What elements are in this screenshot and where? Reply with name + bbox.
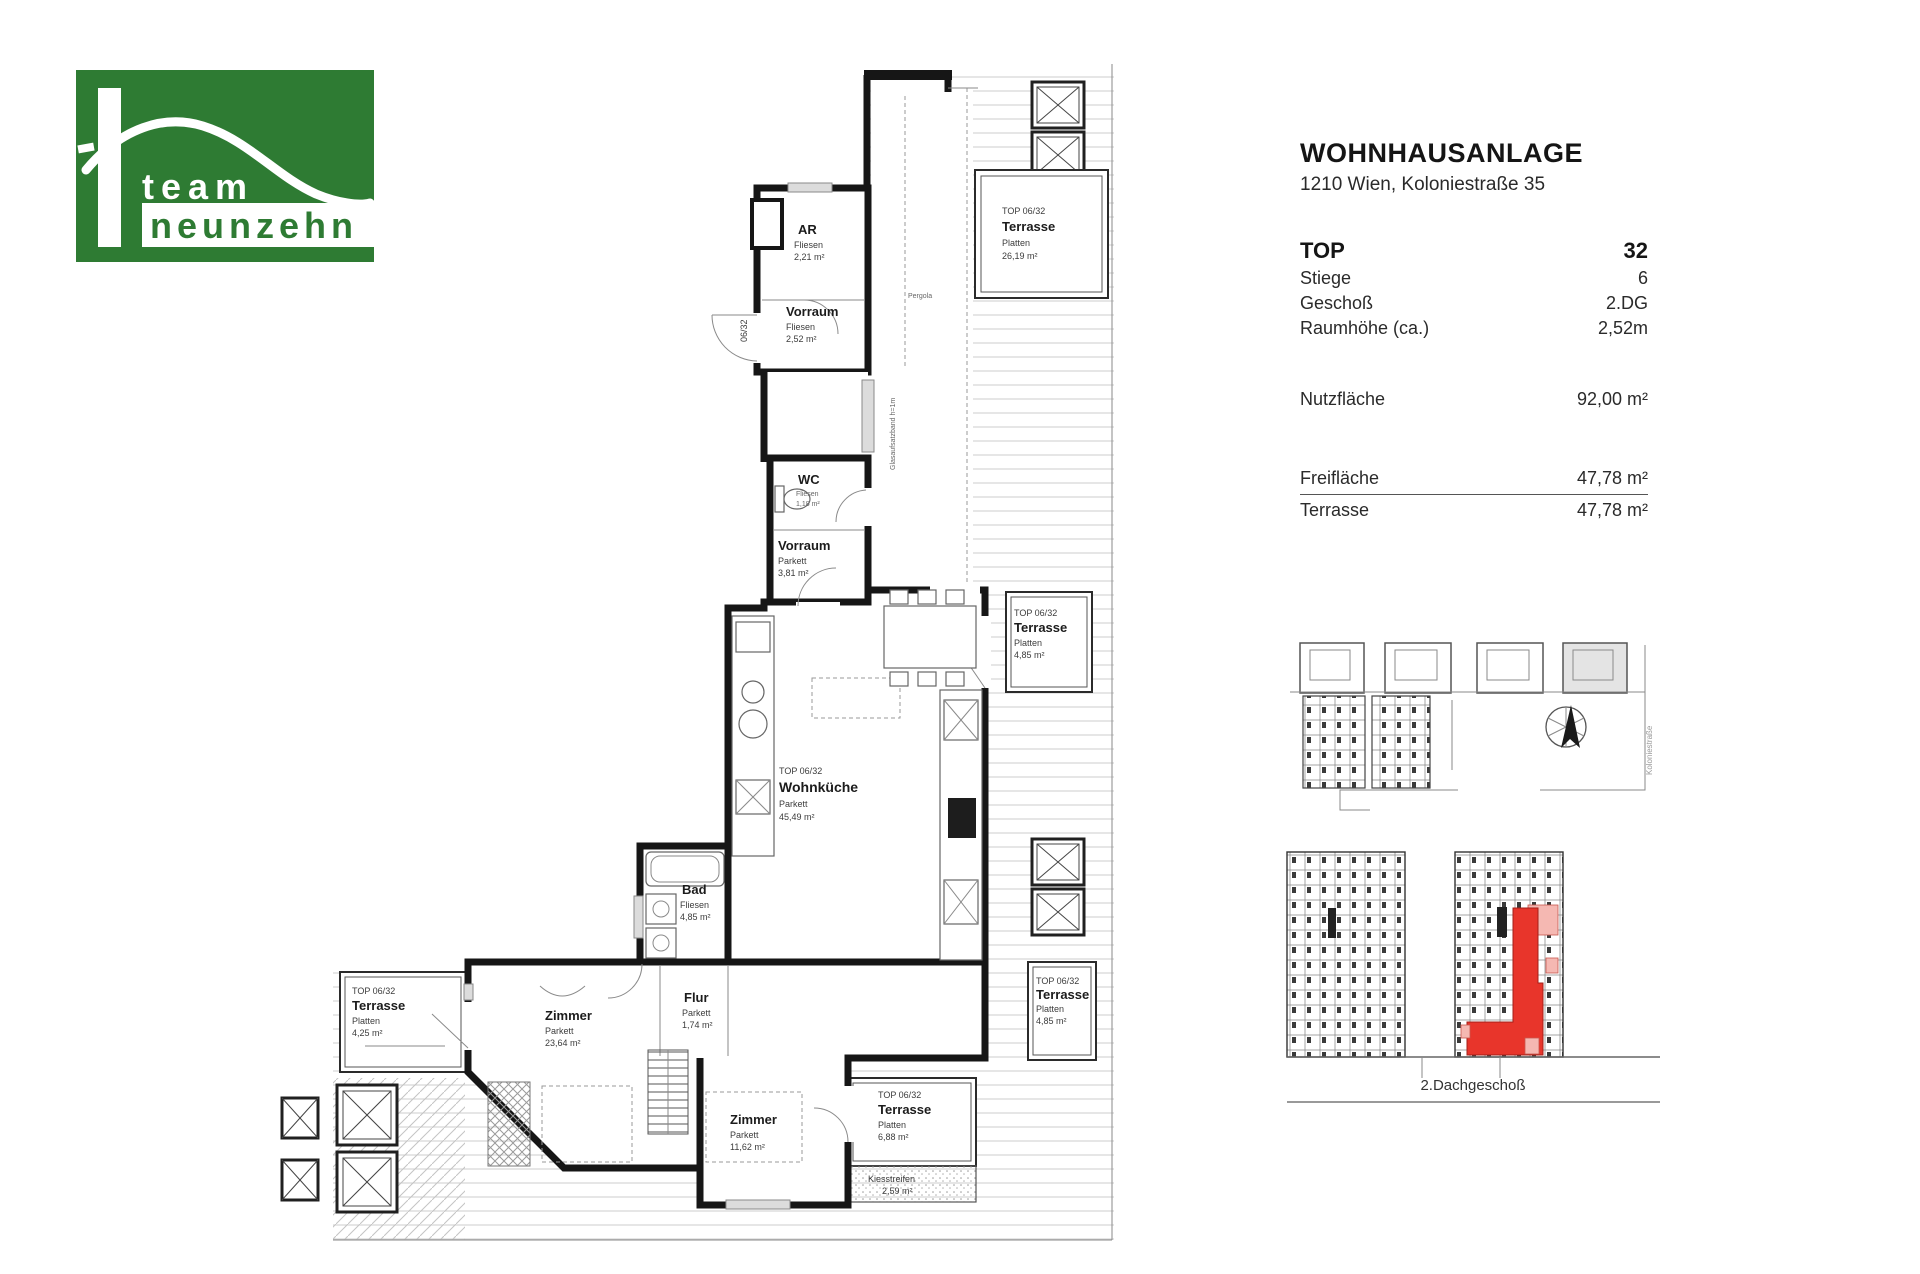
svg-text:Fliesen: Fliesen [794,240,823,250]
zimmer1-terrace-door-gap [462,1002,474,1050]
terrace-left: TOP 06/32 Terrasse Platten 4,25 m² [340,972,466,1072]
keyplan-building-left [1287,852,1405,1057]
skylight-right-2 [1032,889,1084,935]
wardrobe [488,1082,530,1166]
terrace-low-right: TOP 06/32 Terrasse Platten 4,85 m² [1028,962,1096,1060]
terrace-left-material: Platten [352,1016,380,1026]
chair [946,672,964,686]
skylight-small-2 [282,1160,318,1200]
north-needle [1561,705,1580,748]
bath-sink-2 [646,928,676,958]
svg-text:Fliesen: Fliesen [680,900,709,910]
terrace-left-area: 4,25 m² [352,1028,383,1038]
chair [946,590,964,604]
terrace-mid-area: 4,85 m² [1014,650,1045,660]
terrace-left-tag: TOP 06/32 [352,986,395,996]
label-ar: AR [798,222,817,237]
kitchen-sink-small [742,681,764,703]
keyplan-floor-label: 2.Dachgeschoß [1420,1077,1525,1094]
floorplan-page: team neunzehn WOHNHAUSANLAGE 1210 Wien, … [0,0,1920,1274]
highlight-terrace-3 [1525,1038,1539,1054]
svg-text:11,62 m²: 11,62 m² [730,1142,765,1152]
entrance-door-gap [751,313,763,363]
svg-text:Parkett: Parkett [682,1008,711,1018]
terrace-low-name: Terrasse [1036,987,1089,1002]
kiesstreifen-label: Kiesstreifen [868,1174,915,1184]
entrance-door-label: 06/32 [739,319,749,342]
terrace-mid-material: Platten [1014,638,1042,648]
bathtub [646,852,724,886]
svg-text:Parkett: Parkett [779,799,808,809]
label-vorraum2: Vorraum [778,538,831,553]
terrace-low-material: Platten [1036,1004,1064,1014]
terrace-bottom-area: 6,88 m² [878,1132,909,1142]
wc-tank [775,486,784,512]
terrace-door-gap [979,616,991,688]
entrance-niche [752,200,782,248]
svg-text:Fliesen: Fliesen [786,322,815,332]
label-wohnkueche: Wohnküche [779,779,858,795]
kiesstreifen-strip [848,1166,976,1202]
dining-table [884,606,976,668]
entrance-window [788,183,832,192]
svg-text:45,49 m²: 45,49 m² [779,812,815,822]
kiesstreifen-area: 2,59 m² [882,1186,913,1196]
terrace-low-area: 4,85 m² [1036,1016,1067,1026]
keyplan-core-left [1328,908,1336,938]
site-building-b [1372,696,1430,788]
skylight-small-1 [282,1098,318,1138]
terrace-bottom-name: Terrasse [878,1102,931,1117]
label-wc: WC [798,472,820,487]
skylight-bottomleft-2 [337,1152,397,1212]
svg-text:3,81 m²: 3,81 m² [778,568,809,578]
chair [890,672,908,686]
entrance-door-arc [712,315,757,361]
svg-text:4,85 m²: 4,85 m² [680,912,711,922]
svg-text:Parkett: Parkett [778,556,807,566]
zimmer1-window [464,984,473,1000]
fridge-symbol [948,798,976,838]
pergola-walkway: Pergola Glasaufsatzband h=1m [871,80,973,590]
terrace-low-tag: TOP 06/32 [1036,976,1079,986]
compass-rose [1546,705,1586,748]
site-boundary-2 [1340,790,1458,810]
svg-text:Fliesen: Fliesen [796,491,819,498]
column-upper-field [764,372,868,468]
svg-text:2,52 m²: 2,52 m² [786,334,817,344]
label-zimmer2: Zimmer [730,1112,777,1127]
skylight-bottomleft-1 [337,1085,397,1145]
terrace-mid-name: Terrasse [1014,620,1067,635]
terrace-top-area: 26,19 m² [1002,251,1038,261]
skylight-top-1 [1032,82,1084,128]
floor-plan-canvas: Pergola Glasaufsatzband h=1m [0,0,1920,1274]
terrace-top-name: Terrasse [1002,219,1055,234]
street-label: Koloniestraße [1645,725,1654,775]
svg-text:Parkett: Parkett [545,1026,574,1036]
svg-text:2,21 m²: 2,21 m² [794,252,825,262]
vorraum-kueche-door-gap [796,602,840,614]
terrace-mid-tag: TOP 06/32 [1014,608,1057,618]
label-zimmer1: Zimmer [545,1008,592,1023]
skylight-right-1 [1032,839,1084,885]
label-flur: Flur [684,990,709,1005]
zimmer2-terrace-door-gap [842,1086,854,1142]
terrace-bottom-material: Platten [878,1120,906,1130]
site-plan-upper: Koloniestraße [1290,643,1654,810]
keyplan-core-right [1497,907,1507,937]
terrace-top-material: Platten [1002,238,1030,248]
label-bad: Bad [682,882,707,897]
chair [890,590,908,604]
terrace-bottom-tag: TOP 06/32 [878,1090,921,1100]
site-plan-lower: 2.Dachgeschoß [1287,852,1660,1102]
chair [918,590,936,604]
highlight-terrace-2 [1546,958,1558,973]
bad-window [634,896,643,938]
zimmer2-window [726,1200,790,1209]
floor-plan: Pergola Glasaufsatzband h=1m [282,64,1114,1240]
kitchen-sink-large [739,710,767,738]
wc-door-gap [862,488,874,526]
kitchen-appliance [736,622,770,652]
site-building-a [1303,696,1365,788]
walkway-field [871,80,973,590]
terrace-bottom: TOP 06/32 Terrasse Platten 6,88 m² Kiess… [848,1078,976,1202]
column-glass-door [862,380,874,452]
terrace-top-tag: TOP 06/32 [1002,206,1045,216]
terrace-top: TOP 06/32 Terrasse Platten 26,19 m² [975,170,1108,298]
highlight-terrace-4 [1461,1025,1470,1038]
bath-sink-1 [646,894,676,924]
pergola-label: Pergola [908,293,932,300]
label-vorraum1: Vorraum [786,304,839,319]
glass-band-note: Glasaufsatzband h=1m [890,398,897,470]
svg-text:1,18 m²: 1,18 m² [796,501,820,508]
chair [918,672,936,686]
svg-text:Parkett: Parkett [730,1130,759,1140]
svg-text:23,64 m²: 23,64 m² [545,1038,581,1048]
terrace-mid-right: TOP 06/32 Terrasse Platten 4,85 m² [1006,592,1092,692]
label-wohnkueche-tag: TOP 06/32 [779,766,822,776]
svg-text:1,74 m²: 1,74 m² [682,1020,713,1030]
terrace-left-name: Terrasse [352,998,405,1013]
